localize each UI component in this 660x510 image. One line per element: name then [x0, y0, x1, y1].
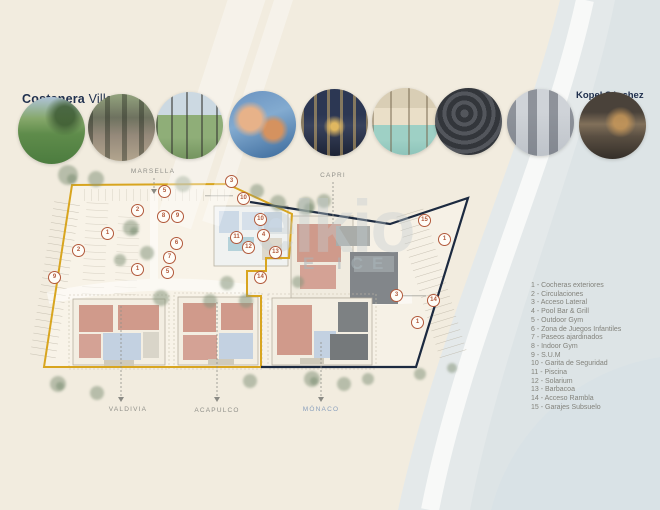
map-marker-5: 5 [161, 266, 174, 279]
street-label-valdivia: VALDIVIA [95, 406, 161, 413]
map-marker-5: 5 [158, 185, 171, 198]
street-label-monaco: MÓNACO [288, 406, 354, 413]
laundry-photo [507, 89, 574, 156]
map-marker-1: 1 [438, 233, 451, 246]
site-plan-page: Costanera Village Kopel Sánchez elkio E … [0, 0, 660, 510]
legend-item: 10 - Garita de Seguridad [531, 360, 659, 369]
legend-item: 7 - Paseos ajardinados [531, 334, 659, 343]
map-marker-14: 14 [254, 271, 267, 284]
site-plan-map [0, 0, 660, 510]
night-bar-photo [301, 89, 368, 156]
map-marker-7: 7 [163, 251, 176, 264]
legend-item: 5 - Outdoor Gym [531, 317, 659, 326]
legend-item: 3 - Acceso Lateral [531, 299, 659, 308]
legend-item: 12 - Solarium [531, 378, 659, 387]
map-marker-4: 4 [257, 229, 270, 242]
legend-item: 2 - Circulaciones [531, 291, 659, 300]
map-marker-1: 1 [411, 316, 424, 329]
legend-list: 1 - Cocheras exteriores2 - Circulaciones… [531, 282, 659, 413]
legend-item: 1 - Cocheras exteriores [531, 282, 659, 291]
indoor-gym-photo [88, 94, 155, 161]
map-marker-6: 6 [170, 237, 183, 250]
map-marker-15: 15 [418, 214, 431, 227]
pool-solarium-photo [372, 88, 439, 155]
legend-item: 14 - Acceso Rambla [531, 395, 659, 404]
grill-kitchen-photo [579, 92, 646, 159]
map-marker-2: 2 [72, 244, 85, 257]
legend-item: 9 - S.U.M [531, 352, 659, 361]
map-marker-10: 10 [237, 192, 250, 205]
street-label-acapulco: ACAPULCO [184, 407, 250, 414]
pool-party-photo [229, 91, 296, 158]
map-marker-8: 8 [157, 210, 170, 223]
legend-item: 6 - Zona de Juegos Infantiles [531, 326, 659, 335]
map-marker-1: 1 [131, 263, 144, 276]
map-marker-9: 9 [171, 210, 184, 223]
garden-playground-photo [18, 97, 85, 164]
legend-item: 13 - Barbacoa [531, 386, 659, 395]
map-marker-3: 3 [390, 289, 403, 302]
map-marker-2: 2 [131, 204, 144, 217]
map-marker-12: 12 [242, 241, 255, 254]
outdoor-gym-photo [156, 92, 223, 159]
lounge-sum-photo [435, 88, 502, 155]
street-label-capri: CAPRI [306, 172, 360, 179]
map-marker-13: 13 [269, 246, 282, 259]
legend: 1 - Cocheras exteriores2 - Circulaciones… [531, 282, 659, 413]
map-marker-1: 1 [101, 227, 114, 240]
map-marker-3: 3 [225, 175, 238, 188]
map-marker-14: 14 [427, 294, 440, 307]
legend-item: 4 - Pool Bar & Grill [531, 308, 659, 317]
legend-item: 15 - Garajes Subsuelo [531, 404, 659, 413]
map-marker-11: 11 [230, 231, 243, 244]
legend-item: 11 - Piscina [531, 369, 659, 378]
legend-item: 8 - Indoor Gym [531, 343, 659, 352]
street-label-marsella: MARSELLA [120, 168, 186, 175]
map-marker-10: 10 [254, 213, 267, 226]
map-marker-9: 9 [48, 271, 61, 284]
